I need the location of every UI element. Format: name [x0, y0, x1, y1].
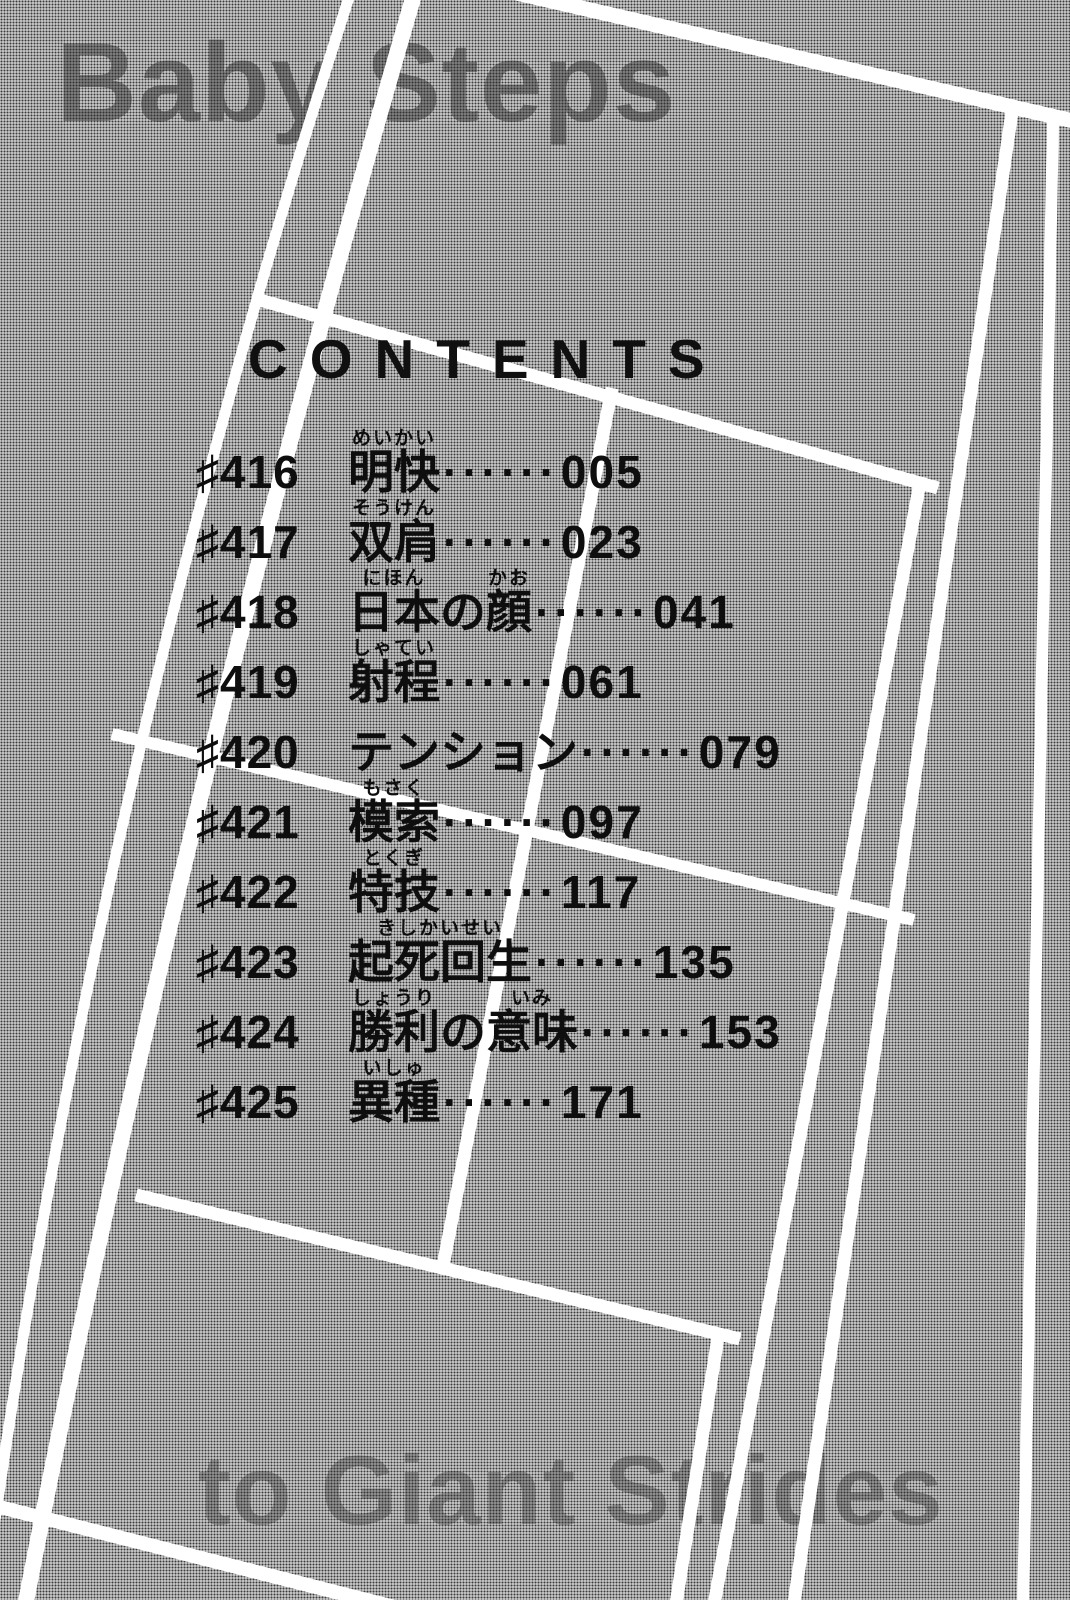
chapter-number: ♯425: [196, 1079, 348, 1127]
court-line-center-lower: [675, 1331, 719, 1600]
chapter-number: ♯420: [196, 729, 348, 777]
leader-dots: ······: [535, 939, 651, 987]
toc-entry-421: ♯421模索もさく······097: [196, 777, 996, 847]
leader-dots: ······: [535, 589, 651, 637]
chapter-title: 特技とくぎ: [348, 848, 440, 917]
page-number: 097: [561, 799, 644, 847]
leader-dots: ······: [443, 869, 559, 917]
page-number: 117: [561, 869, 641, 917]
toc-list: ♯416明快めいかい······005♯417双肩そうけん······023♯4…: [196, 427, 996, 1147]
page-number: 153: [699, 1009, 782, 1057]
page-number: 079: [699, 729, 782, 777]
chapter-number: ♯422: [196, 869, 348, 917]
toc-entry-417: ♯417双肩そうけん······023: [196, 497, 996, 567]
chapter-number: ♯421: [196, 799, 348, 847]
toc-entry-423: ♯423起死回生きしかいせい······135: [196, 917, 996, 987]
toc-entry-418: ♯418日本にほんの顔かお······041: [196, 567, 996, 637]
page-number: 061: [561, 659, 644, 707]
toc-entry-419: ♯419射程しゃてい······061: [196, 637, 996, 707]
chapter-number: ♯416: [196, 449, 348, 497]
toc-entry-420: ♯420テンション······079: [196, 707, 996, 777]
court-line-top-baseline: [512, 0, 1070, 122]
page-number: 041: [653, 589, 736, 637]
page-number: 135: [653, 939, 736, 987]
chapter-title: 起死回生きしかいせい: [348, 918, 532, 987]
leader-dots: ······: [581, 1009, 697, 1057]
page-number: 023: [561, 519, 644, 567]
chapter-title: テンション: [348, 729, 578, 777]
chapter-number: ♯417: [196, 519, 348, 567]
page-number: 005: [561, 449, 644, 497]
chapter-title: 射程しゃてい: [348, 638, 440, 707]
chapter-title: 模索もさく: [348, 778, 440, 847]
page-title: CONTENTS: [248, 327, 727, 391]
leader-dots: ······: [443, 1079, 559, 1127]
chapter-title: 双肩そうけん: [348, 498, 440, 567]
chapter-title: 勝利しょうりの意味いみ: [348, 988, 578, 1057]
court-line-service-lower: [136, 1195, 740, 1339]
leader-dots: ······: [443, 799, 559, 847]
toc-entry-416: ♯416明快めいかい······005: [196, 427, 996, 497]
court-line-bottom: [0, 1504, 438, 1600]
toc-entry-424: ♯424勝利しょうりの意味いみ······153: [196, 987, 996, 1057]
manga-contents-page: Baby Steps to Giant Strides CONTENTS ♯41…: [0, 0, 1070, 1600]
chapter-title: 日本にほんの顔かお: [348, 568, 532, 637]
court-line-right-edge: [1023, 121, 1053, 1600]
chapter-number: ♯424: [196, 1009, 348, 1057]
leader-dots: ······: [443, 519, 559, 567]
toc-entry-422: ♯422特技とくぎ······117: [196, 847, 996, 917]
chapter-number: ♯419: [196, 659, 348, 707]
leader-dots: ······: [443, 659, 559, 707]
chapter-number: ♯418: [196, 589, 348, 637]
leader-dots: ······: [581, 729, 697, 777]
page-number: 171: [561, 1079, 644, 1127]
chapter-title: 異種いしゅ: [348, 1058, 440, 1127]
chapter-title: 明快めいかい: [348, 428, 440, 497]
chapter-number: ♯423: [196, 939, 348, 987]
toc-entry-425: ♯425異種いしゅ······171: [196, 1057, 996, 1127]
leader-dots: ······: [443, 449, 559, 497]
